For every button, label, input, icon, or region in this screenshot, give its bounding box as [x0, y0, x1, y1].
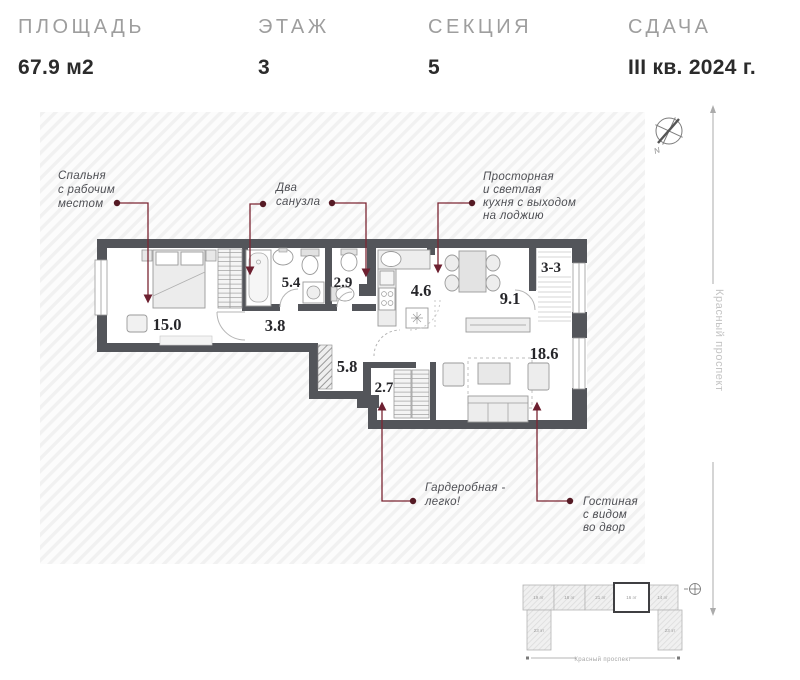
sink-small-bath [341, 249, 357, 271]
minimap-wing-left-label: 23 эт [534, 628, 545, 633]
bedroom-window [95, 260, 107, 315]
sofa [468, 396, 528, 422]
loggia-window [573, 263, 585, 313]
work-desk [127, 315, 147, 332]
minimap-street: Красный проспект [526, 656, 680, 663]
room-label-kitchen: 4.6 [411, 281, 432, 300]
washing-machine [303, 282, 324, 303]
room-label-corridor: 5.8 [337, 357, 358, 376]
callout-wardrobe-line1: Гардеробная - [425, 482, 505, 494]
callout-kitchen-line4: на лоджию [483, 210, 544, 222]
room-label-bath-large: 5.4 [282, 275, 301, 291]
minimap-section-5-label: 14 эт [657, 595, 668, 600]
dishwasher [406, 308, 428, 328]
living-window [573, 338, 585, 389]
room-label-hall: 3.8 [265, 316, 286, 335]
bedroom-closet [218, 249, 242, 308]
coffee-table [478, 363, 510, 384]
callout-bathrooms-line1: Два [274, 182, 297, 194]
callout-bedroom-line2: с рабочим [58, 184, 115, 196]
callout-kitchen-line3: кухня с выходом [483, 197, 576, 209]
minimap-street-label: Красный проспект [574, 656, 631, 663]
callout-living-line1: Гостиная [583, 496, 638, 508]
callout-living-line2: с видом [583, 509, 627, 521]
room-label-dining: 9.1 [500, 289, 521, 308]
room-label-living: 18.6 [530, 344, 559, 363]
room-label-bath-small: 2.9 [334, 275, 353, 291]
bed [153, 250, 205, 308]
callout-kitchen-line1: Просторная [483, 171, 554, 183]
armchair-left [443, 363, 464, 386]
floor-plan-svg: 15.0 3.8 5.4 2.9 5.8 2.7 4.6 9.1 3-3 18.… [0, 0, 800, 680]
stove [379, 288, 395, 310]
compass-north-label: N [653, 145, 661, 155]
callout-bedroom-line1: Спальня [58, 170, 106, 182]
street-name-label: Красный проспект [713, 289, 725, 392]
toilet-large-bath [301, 249, 319, 275]
armchair-right [528, 363, 549, 390]
callout-wardrobe-line2: легко! [424, 496, 461, 508]
sideboard [466, 318, 530, 332]
callout-bedroom-line3: местом [58, 198, 103, 210]
building-minimap: 19 эт 18 эт 21 эт 16 эт 14 эт 23 эт 23 э… [523, 583, 701, 663]
minimap-section-1-label: 19 эт [533, 595, 544, 600]
callout-bathrooms-line2: санузла [276, 196, 320, 208]
room-label-bedroom: 15.0 [153, 315, 182, 334]
callout-kitchen-line2: и светлая [483, 184, 541, 196]
room-label-wardrobe: 2.7 [375, 380, 394, 396]
minimap-wing-right-label: 23 эт [665, 628, 676, 633]
compass-icon [655, 117, 682, 144]
nightstand-right [206, 250, 216, 261]
minimap-section-2-label: 18 эт [564, 595, 575, 600]
room-label-loggia: 3-3 [541, 260, 561, 276]
vent-shaft [318, 345, 332, 389]
minimap-section-4-label: 16 эт [626, 595, 637, 600]
callout-living-line3: во двор [583, 522, 626, 534]
nightstand-left [142, 250, 152, 261]
bedroom-rug [160, 336, 212, 345]
minimap-section-3-label: 21 эт [595, 595, 606, 600]
minimap-compass-icon [684, 584, 701, 595]
